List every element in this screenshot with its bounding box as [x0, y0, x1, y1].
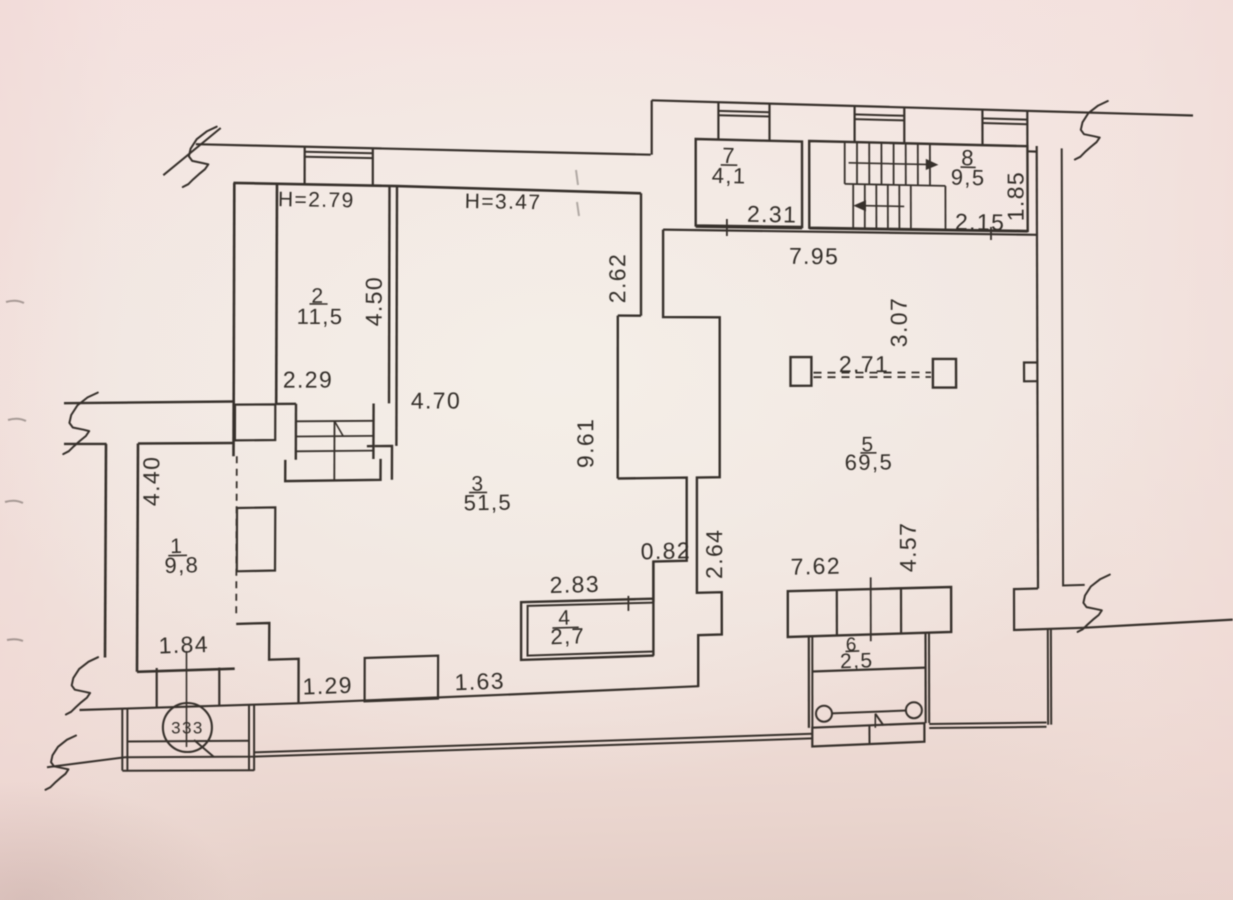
svg-text:3.07: 3.07 [886, 297, 912, 347]
svg-text:9,5: 9,5 [951, 165, 986, 191]
svg-text:69,5: 69,5 [845, 449, 894, 475]
svg-text:2,7: 2,7 [550, 623, 586, 649]
svg-text:4.40: 4.40 [138, 456, 164, 506]
svg-text:H=3.47: H=3.47 [465, 190, 542, 214]
svg-text:1.29: 1.29 [302, 672, 353, 700]
svg-text:9.61: 9.61 [572, 418, 598, 468]
svg-text:333: 333 [171, 719, 204, 738]
svg-text:H=2.79: H=2.79 [278, 188, 355, 212]
svg-text:7.95: 7.95 [789, 243, 840, 270]
svg-text:2.83: 2.83 [549, 571, 600, 598]
svg-text:2.31: 2.31 [747, 201, 798, 228]
svg-text:4.70: 4.70 [411, 387, 462, 413]
svg-text:2,5: 2,5 [840, 649, 874, 673]
svg-text:4.57: 4.57 [895, 522, 921, 572]
svg-text:2.29: 2.29 [283, 367, 333, 393]
svg-text:11,5: 11,5 [297, 304, 344, 329]
svg-text:2.62: 2.62 [604, 253, 630, 303]
svg-text:7.62: 7.62 [790, 553, 841, 580]
svg-text:1.85: 1.85 [1002, 171, 1028, 221]
svg-text:4,1: 4,1 [712, 163, 747, 189]
svg-text:9,8: 9,8 [164, 552, 199, 578]
svg-text:1.63: 1.63 [454, 668, 505, 696]
svg-text:0.82: 0.82 [640, 537, 691, 564]
svg-text:4.50: 4.50 [361, 276, 387, 326]
svg-text:51,5: 51,5 [463, 490, 512, 516]
svg-text:2.64: 2.64 [701, 529, 727, 579]
svg-text:1.84: 1.84 [158, 631, 209, 659]
